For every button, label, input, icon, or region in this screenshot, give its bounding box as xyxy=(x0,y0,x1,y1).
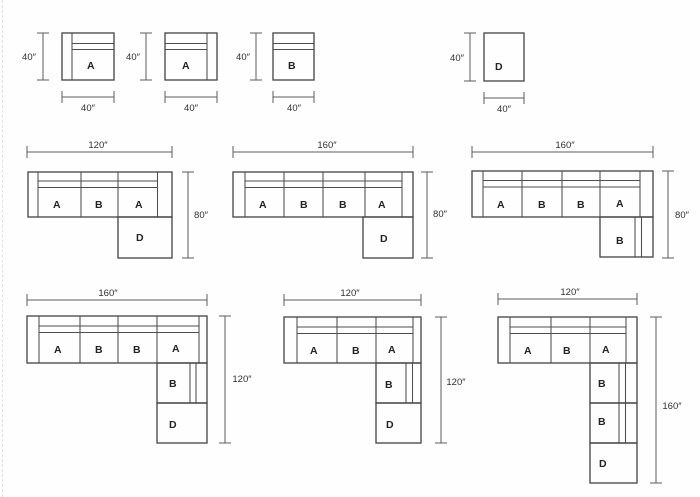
seat-label: A xyxy=(259,199,267,211)
module-label: B xyxy=(288,60,296,72)
seat-label: A xyxy=(524,345,532,357)
seat-label: A xyxy=(54,344,62,356)
module-outline xyxy=(273,33,314,80)
dimension-label: 40″ xyxy=(236,52,251,63)
dimension-label: 120″ xyxy=(232,374,252,385)
seat-label: B xyxy=(95,344,103,356)
seat-label: A xyxy=(497,199,505,211)
dimension-label: 120″ xyxy=(560,287,580,298)
seat-label: A xyxy=(53,199,61,211)
module-label: D xyxy=(495,61,503,73)
return-module-outline xyxy=(157,403,207,443)
unit-armchair-A-right-arm: A40″40″ xyxy=(126,33,217,114)
dimension-label: 160″ xyxy=(555,140,575,151)
module-outline xyxy=(484,33,524,81)
module-label: D xyxy=(386,419,394,431)
technical-drawing-page: A40″40″A40″40″B40″40″D40″40″ABAD120″80″A… xyxy=(0,0,700,497)
config-120in-x-160in-ABA-B-B-D: ABABBD120″160″ xyxy=(498,287,682,483)
dimension-label: 120″ xyxy=(446,377,466,388)
seat-label: B xyxy=(339,199,347,211)
module-label: B xyxy=(616,235,624,247)
seat-label: B xyxy=(300,199,308,211)
seat-label: A xyxy=(172,343,180,355)
seat-label: B xyxy=(352,345,360,357)
dimension-label: 120″ xyxy=(340,288,360,299)
return-module-outline xyxy=(157,363,207,403)
dimension-label: 160″ xyxy=(317,140,337,151)
dimension-label: 160″ xyxy=(98,288,118,299)
module-label: B xyxy=(169,378,177,390)
return-module-outline xyxy=(376,403,421,443)
return-module-outline xyxy=(590,443,637,483)
module-label: D xyxy=(599,458,607,470)
seat-label: B xyxy=(563,345,571,357)
module-label: D xyxy=(380,233,388,245)
dimension-label: 40″ xyxy=(184,103,199,114)
seat-label: B xyxy=(538,199,546,211)
return-module-outline xyxy=(590,403,637,443)
dimension-label: 40″ xyxy=(126,52,141,63)
config-160in-x-80in-ABBA-D: ABBAD160″80″ xyxy=(233,140,448,258)
dimension-label: 40″ xyxy=(287,103,302,114)
seat-label: A xyxy=(388,344,396,356)
seat-label: A xyxy=(602,344,610,356)
dimension-label: 80″ xyxy=(675,210,690,221)
unit-armchair-A-left-arm: A40″40″ xyxy=(22,33,114,114)
module-outline xyxy=(62,33,114,80)
module-label: B xyxy=(598,416,606,428)
return-module-outline xyxy=(590,363,637,403)
seat-label: A xyxy=(378,199,386,211)
module-label: B xyxy=(385,379,393,391)
dimension-label: 40″ xyxy=(450,53,465,64)
unit-armless-B: B40″40″ xyxy=(236,33,314,114)
seat-label: A xyxy=(310,345,318,357)
module-label: A xyxy=(182,60,190,72)
dimension-label: 80″ xyxy=(194,210,209,221)
config-120in-x-120in-ABA-B-D: ABABD120″120″ xyxy=(284,288,466,443)
dimension-label: 80″ xyxy=(433,209,448,220)
module-label: D xyxy=(136,232,144,244)
seat-label: B xyxy=(133,344,141,356)
seat-label: A xyxy=(135,199,143,211)
dimension-label: 160″ xyxy=(662,401,682,412)
seat-label: B xyxy=(95,199,103,211)
config-160in-x-120in-ABBA-B-D: ABBABD160″120″ xyxy=(27,288,252,443)
seat-label: A xyxy=(616,198,624,210)
dimension-label: 40″ xyxy=(81,103,96,114)
dimension-label: 40″ xyxy=(22,52,37,63)
return-module-outline xyxy=(118,217,172,258)
module-label: A xyxy=(87,60,95,72)
config-120in-x-80in-ABA-D: ABAD120″80″ xyxy=(27,140,209,258)
module-label: B xyxy=(598,378,606,390)
module-outline xyxy=(165,33,217,80)
return-module-outline xyxy=(376,363,421,403)
unit-ottoman-D: D40″40″ xyxy=(450,33,524,115)
seat-label: B xyxy=(577,199,585,211)
return-module-outline xyxy=(363,217,413,258)
config-160in-x-80in-ABBA-B-return: ABBAB160″80″ xyxy=(472,140,690,258)
dimension-label: 40″ xyxy=(497,104,512,115)
dimension-label: 120″ xyxy=(88,140,108,151)
return-module-outline xyxy=(600,217,653,257)
sectional-sofa-dimension-diagram: A40″40″A40″40″B40″40″D40″40″ABAD120″80″A… xyxy=(0,0,700,497)
module-label: D xyxy=(169,419,177,431)
